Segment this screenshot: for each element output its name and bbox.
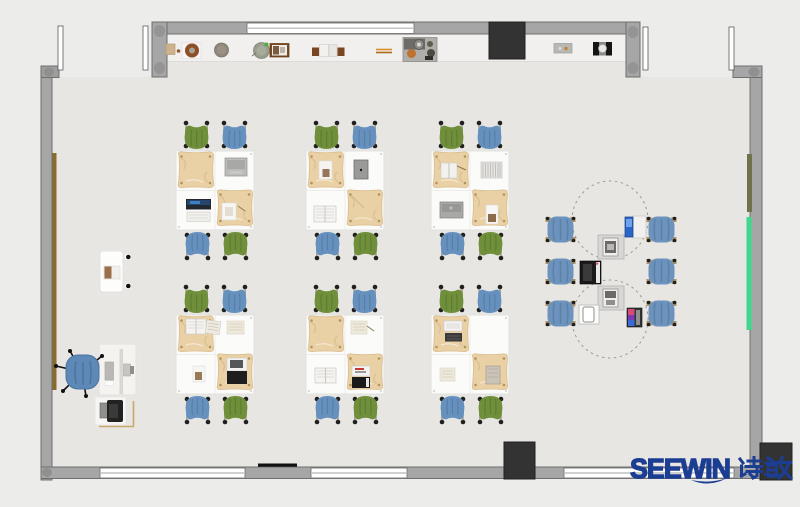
svg-text:SEEWIN: SEEWIN [630, 453, 730, 484]
